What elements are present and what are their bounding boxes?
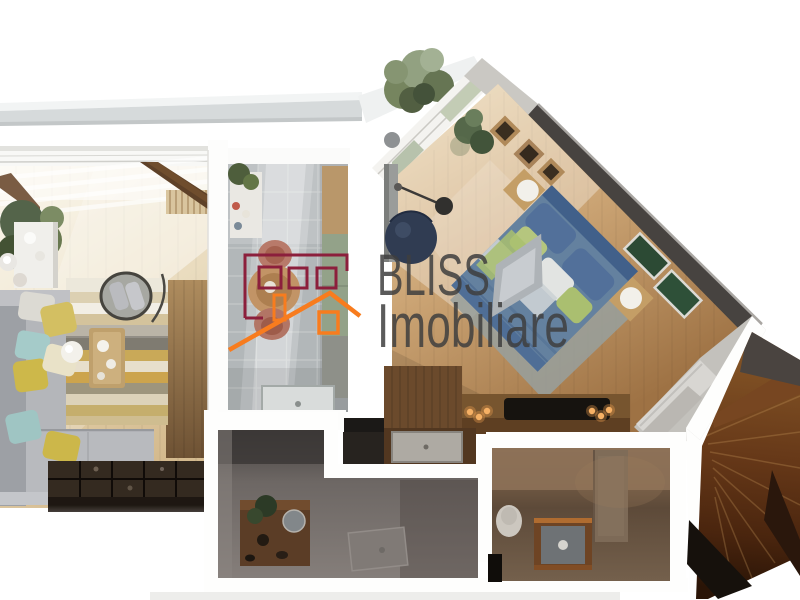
svg-text:Imobiliare: Imobiliare [377,292,569,361]
